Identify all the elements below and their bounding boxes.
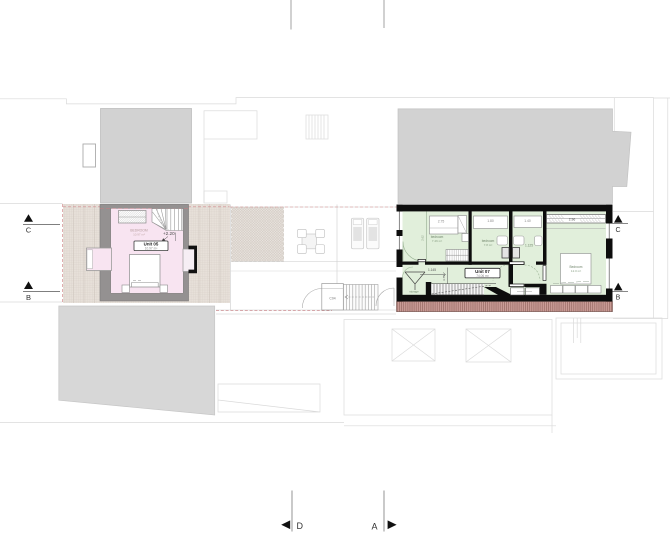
svg-text:1.145: 1.145 [428,268,436,272]
svg-text:74.06 m²: 74.06 m² [476,274,489,278]
svg-text:D: D [297,521,304,531]
svg-text:1.80: 1.80 [487,219,494,223]
svg-text:3.76: 3.76 [442,275,446,281]
svg-text:7.8 m²: 7.8 m² [484,243,493,247]
svg-text:10.97 m²: 10.97 m² [133,232,145,236]
svg-text:C: C [26,226,32,235]
svg-text:2.62: 2.62 [421,235,425,241]
svg-text:+2.20: +2.20 [163,231,175,236]
svg-text:B: B [26,293,31,302]
svg-text:1.125: 1.125 [525,244,533,248]
svg-text:A: A [372,522,378,532]
svg-text:C: C [615,227,620,234]
svg-text:2.96: 2.96 [569,217,576,221]
svg-text:10.97 m²: 10.97 m² [145,247,158,251]
svg-text:7.46 m²: 7.46 m² [432,239,442,243]
svg-text:12.0 m²: 12.0 m² [571,269,581,273]
svg-text:1.40: 1.40 [524,219,531,223]
svg-text:storage: storage [409,290,419,294]
svg-text:B: B [616,295,621,302]
svg-text:2.75: 2.75 [438,220,445,224]
svg-text:C04: C04 [329,297,335,301]
